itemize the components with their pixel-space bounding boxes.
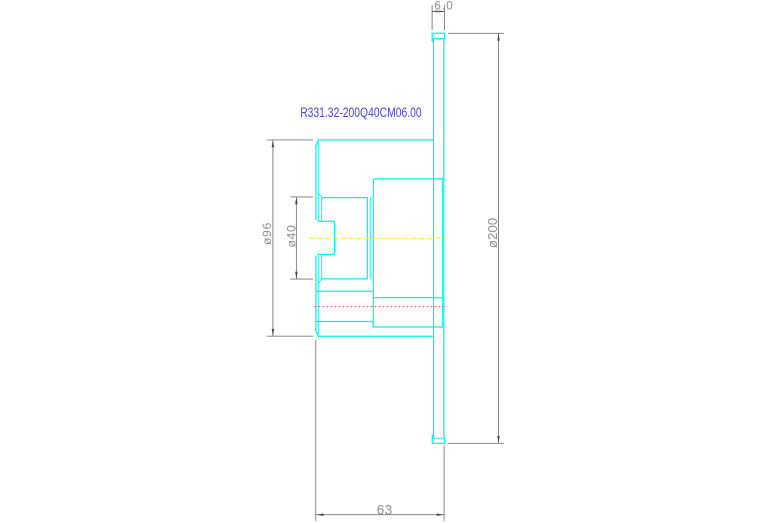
svg-text:ø40: ø40 (284, 225, 298, 247)
svg-text:ø96: ø96 (260, 223, 274, 245)
svg-text:63: 63 (377, 502, 392, 517)
svg-text:R331.32-200Q40CM06.00: R331.32-200Q40CM06.00 (300, 105, 421, 120)
svg-text:6.0: 6.0 (434, 0, 452, 12)
svg-text:ø200: ø200 (485, 218, 500, 248)
